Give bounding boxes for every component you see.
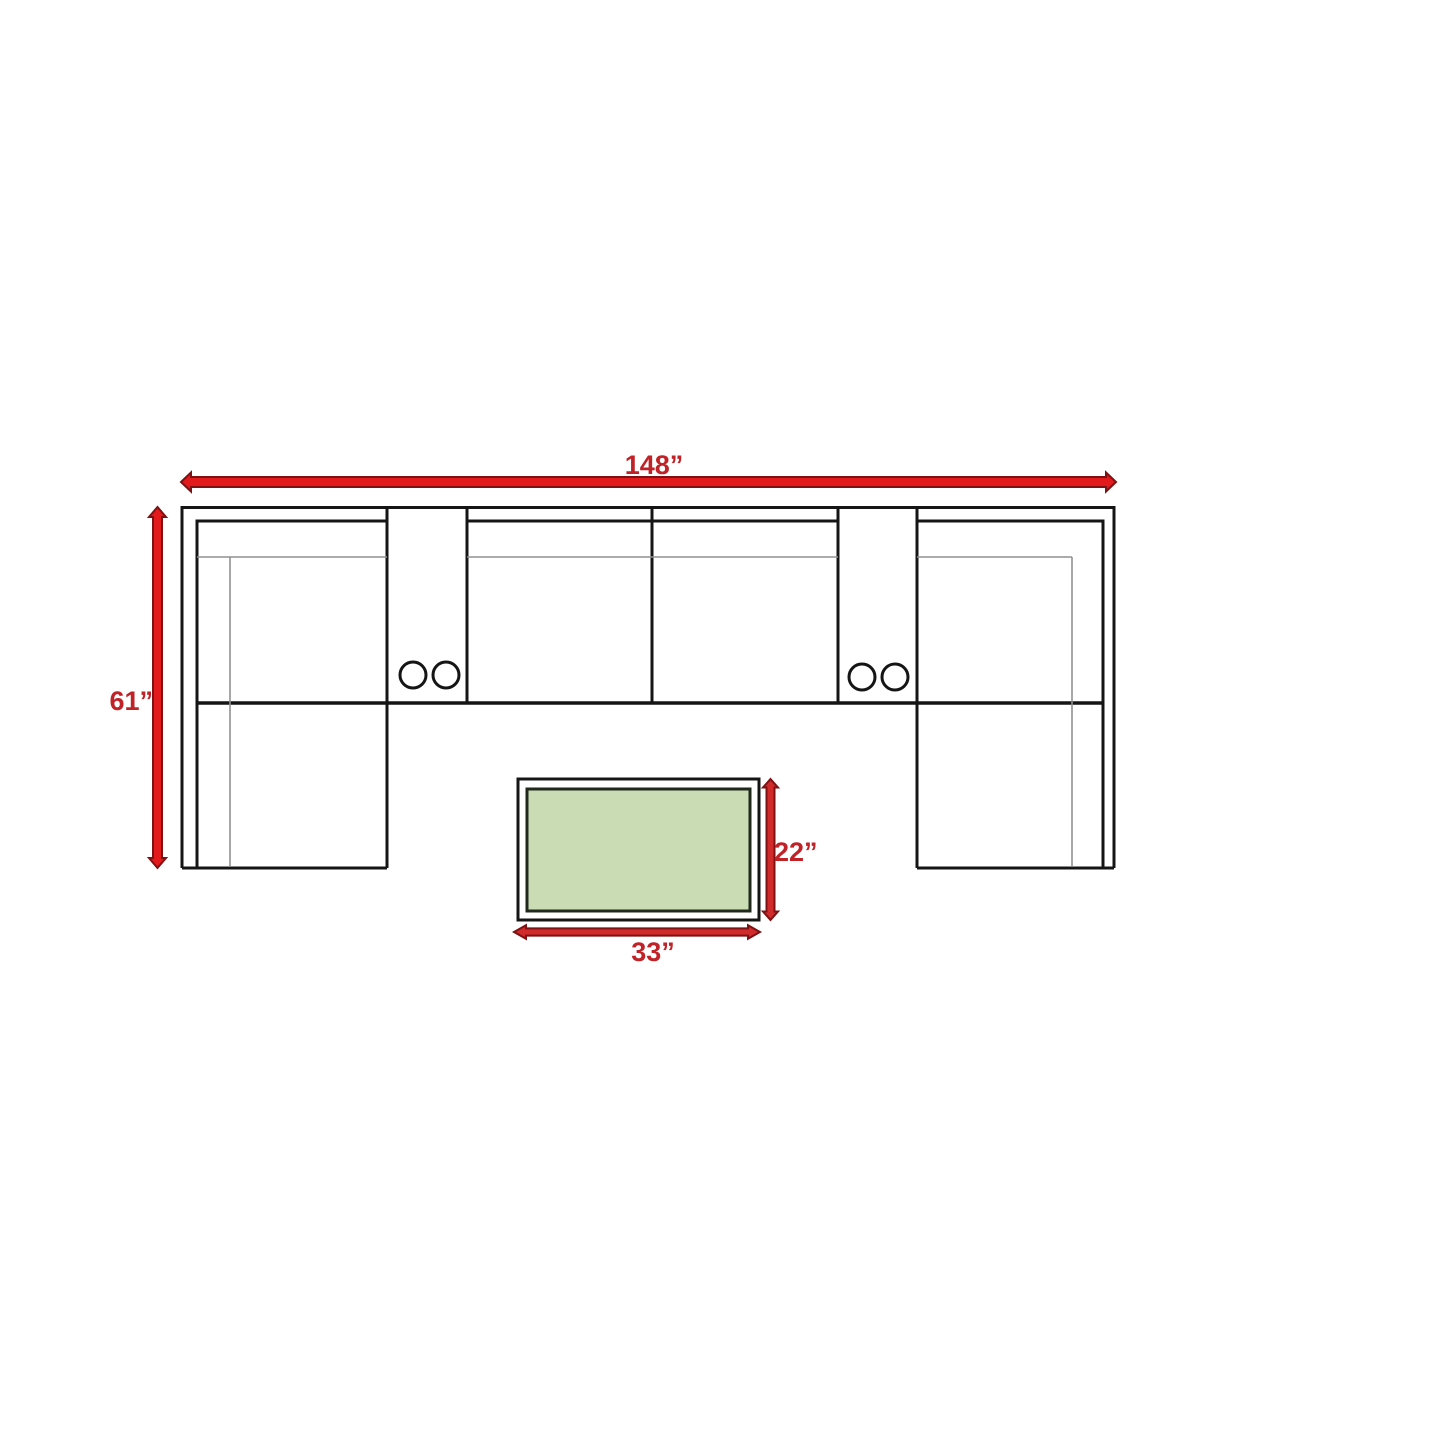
svg-text:61”: 61” (109, 686, 153, 716)
svg-text:22”: 22” (774, 837, 818, 867)
svg-text:33”: 33” (631, 937, 675, 967)
svg-text:148”: 148” (625, 450, 684, 480)
